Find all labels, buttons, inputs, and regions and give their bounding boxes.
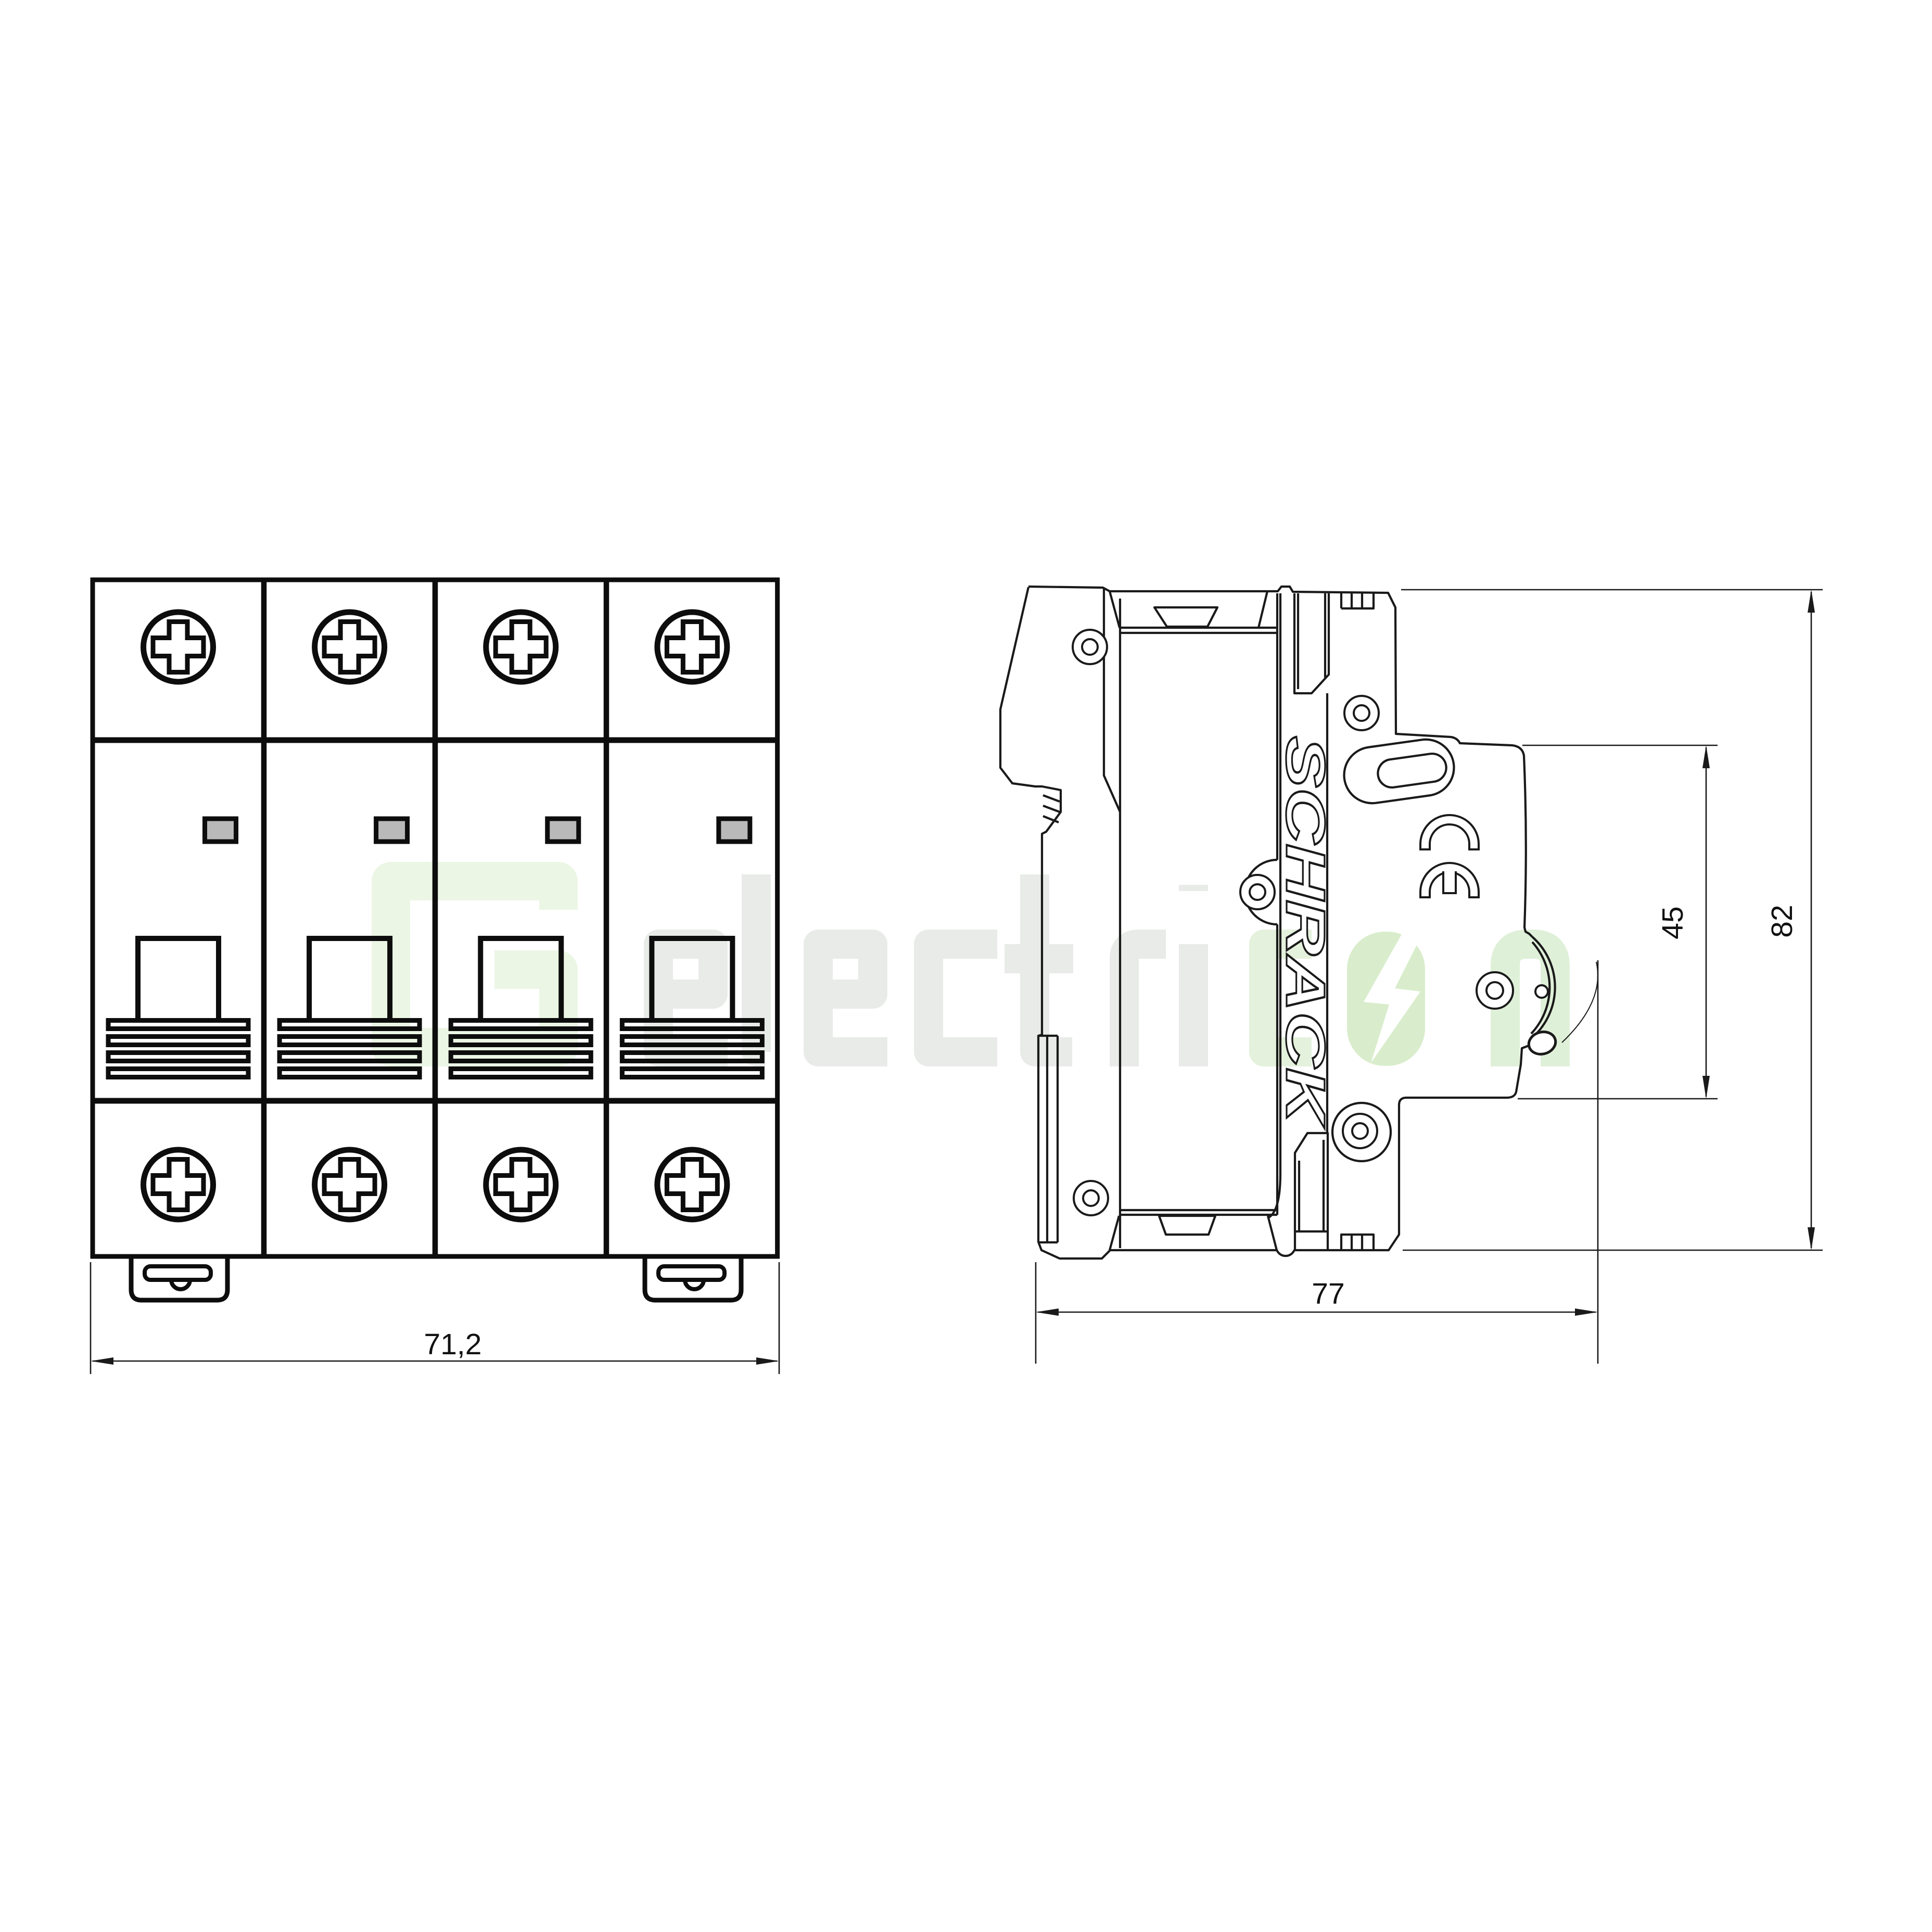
- svg-text:71,2: 71,2: [424, 1328, 482, 1361]
- svg-text:SCHRACK: SCHRACK: [1275, 736, 1336, 1128]
- svg-text:45: 45: [1656, 906, 1689, 939]
- svg-text:77: 77: [1312, 1277, 1344, 1311]
- svg-text:82: 82: [1765, 905, 1799, 937]
